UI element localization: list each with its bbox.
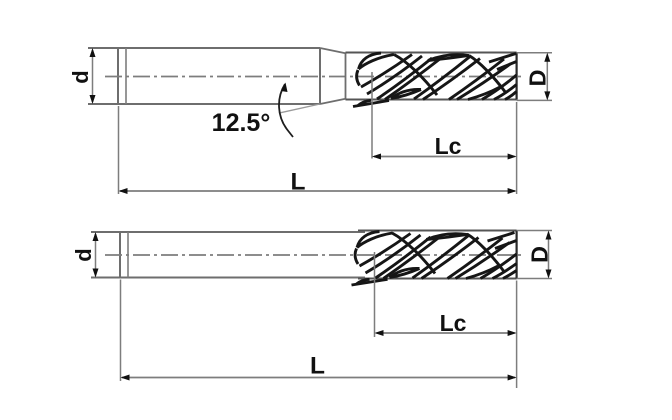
svg-text:D: D — [526, 246, 552, 263]
svg-text:D: D — [525, 70, 551, 87]
svg-text:12.5°: 12.5° — [212, 109, 271, 137]
svg-text:Lc: Lc — [435, 133, 462, 159]
svg-text:L: L — [291, 169, 306, 196]
svg-text:d: d — [68, 70, 93, 83]
svg-text:d: d — [71, 248, 96, 261]
svg-text:Lc: Lc — [440, 310, 467, 336]
svg-text:L: L — [310, 353, 325, 380]
